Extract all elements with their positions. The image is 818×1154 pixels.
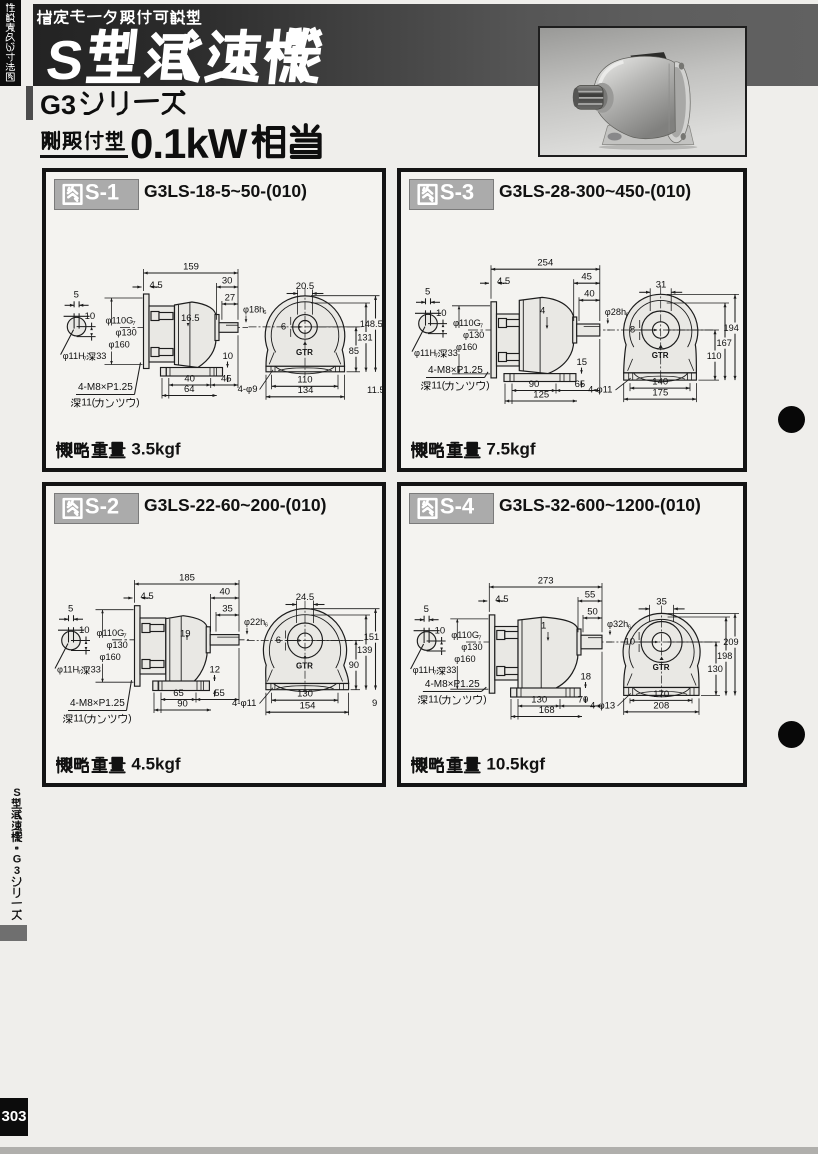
svg-text:33: 33 — [96, 351, 106, 361]
svg-text:11(: 11( — [73, 713, 87, 724]
svg-text:167: 167 — [717, 338, 732, 348]
svg-text:φ160: φ160 — [109, 340, 130, 350]
svg-text:110: 110 — [707, 351, 722, 361]
svg-text:254: 254 — [537, 258, 553, 269]
svg-text:24.5: 24.5 — [296, 592, 315, 603]
svg-text:140: 140 — [652, 377, 668, 388]
svg-text:130: 130 — [297, 689, 313, 700]
svg-text:27: 27 — [225, 292, 236, 303]
svg-text:10: 10 — [85, 311, 96, 322]
svg-text:S: S — [13, 787, 20, 799]
svg-text:185: 185 — [179, 572, 195, 583]
svg-text:5: 5 — [68, 604, 73, 615]
svg-text:GTR: GTR — [296, 662, 313, 671]
svg-text:1: 1 — [541, 620, 546, 631]
svg-text:40: 40 — [584, 289, 595, 300]
svg-text:4.5kgf: 4.5kgf — [127, 756, 181, 773]
svg-text:90: 90 — [177, 698, 188, 709]
svg-text:64: 64 — [184, 384, 195, 395]
svg-text:7: 7 — [83, 356, 86, 362]
svg-text:4: 4 — [540, 305, 545, 316]
svg-text:8: 8 — [630, 324, 635, 335]
svg-text:φ160: φ160 — [456, 342, 477, 352]
svg-text:18: 18 — [581, 671, 592, 682]
svg-text:6: 6 — [265, 623, 268, 629]
svg-text:4-φ11: 4-φ11 — [588, 384, 612, 395]
svg-text:φ11H: φ11H — [63, 351, 85, 361]
svg-text:65: 65 — [173, 688, 184, 699]
svg-text:φ130: φ130 — [116, 328, 137, 338]
svg-text:4-M8×P1.25: 4-M8×P1.25 — [78, 382, 133, 393]
svg-text:S-4: S-4 — [440, 494, 475, 519]
svg-text:GTR: GTR — [296, 348, 313, 357]
svg-text:φ11H: φ11H — [414, 348, 436, 358]
svg-text:10: 10 — [223, 351, 234, 362]
svg-text:4.5: 4.5 — [141, 591, 154, 602]
svg-text:198: 198 — [717, 651, 732, 661]
svg-text:10: 10 — [625, 636, 636, 647]
svg-text:130: 130 — [531, 694, 547, 705]
svg-text:148.5: 148.5 — [360, 319, 382, 329]
svg-text:85: 85 — [349, 346, 359, 356]
svg-text:φ130: φ130 — [463, 330, 484, 340]
svg-text:GTR: GTR — [653, 663, 670, 672]
svg-text:φ160: φ160 — [454, 654, 475, 664]
svg-text:11(: 11( — [428, 694, 442, 705]
svg-text:168: 168 — [539, 705, 555, 716]
svg-text:70: 70 — [578, 694, 589, 705]
svg-text:S-2: S-2 — [85, 494, 119, 519]
svg-text:11.5: 11.5 — [367, 385, 382, 396]
svg-text:φ32h: φ32h — [607, 619, 628, 629]
svg-text:3.5kgf: 3.5kgf — [127, 441, 181, 458]
svg-text:151: 151 — [364, 632, 379, 642]
svg-text:16.5: 16.5 — [181, 313, 200, 324]
svg-text:65: 65 — [575, 379, 586, 390]
svg-text:40: 40 — [220, 586, 231, 597]
svg-text:φ11H: φ11H — [57, 665, 79, 675]
svg-text:50: 50 — [587, 606, 598, 617]
svg-text:φ110G: φ110G — [97, 628, 125, 638]
svg-text:): ) — [136, 397, 139, 408]
svg-text:7: 7 — [478, 636, 481, 642]
svg-text:φ110G: φ110G — [451, 630, 479, 640]
svg-text:G3: G3 — [40, 90, 76, 120]
svg-text:S-3: S-3 — [440, 180, 474, 205]
svg-text:4-M8×P1.25: 4-M8×P1.25 — [70, 698, 125, 709]
svg-text:): ) — [486, 380, 489, 391]
svg-text:5: 5 — [425, 287, 430, 298]
svg-text:6: 6 — [263, 310, 266, 316]
svg-text:5: 5 — [74, 290, 79, 301]
svg-text:90: 90 — [529, 379, 540, 390]
svg-text:φ110G: φ110G — [453, 318, 481, 328]
svg-text:55: 55 — [585, 589, 596, 600]
svg-text:10.5kgf: 10.5kgf — [482, 756, 546, 773]
svg-text:φ110G: φ110G — [106, 316, 134, 326]
svg-text:194: 194 — [724, 323, 739, 333]
svg-text:33: 33 — [91, 665, 101, 675]
svg-text:11(: 11( — [81, 397, 95, 408]
svg-text:5: 5 — [424, 604, 429, 615]
svg-text:12: 12 — [210, 664, 221, 675]
svg-text:7: 7 — [123, 634, 126, 640]
svg-text:139: 139 — [357, 645, 372, 655]
svg-text:154: 154 — [300, 701, 316, 712]
svg-text:φ28h: φ28h — [605, 307, 626, 317]
svg-text:33: 33 — [446, 665, 456, 675]
svg-text:9: 9 — [372, 698, 377, 709]
svg-text:10: 10 — [436, 308, 447, 319]
svg-text:90: 90 — [349, 660, 359, 670]
svg-text:): ) — [128, 713, 131, 724]
svg-text:208: 208 — [653, 700, 669, 711]
svg-text:): ) — [483, 694, 486, 705]
svg-text:7: 7 — [78, 670, 81, 676]
svg-text:40: 40 — [184, 373, 195, 384]
svg-text:20.5: 20.5 — [296, 281, 315, 292]
svg-text:6: 6 — [281, 321, 286, 332]
svg-text:G3LS-32-600~1200-(010): G3LS-32-600~1200-(010) — [499, 497, 701, 515]
svg-text:7: 7 — [433, 671, 436, 677]
svg-text:15: 15 — [577, 357, 588, 368]
svg-text:7.5kgf: 7.5kgf — [482, 441, 536, 458]
svg-text:3: 3 — [14, 865, 20, 877]
svg-text:4.5: 4.5 — [495, 594, 508, 605]
svg-text:175: 175 — [652, 388, 668, 399]
svg-text:10: 10 — [435, 625, 446, 636]
svg-text:45: 45 — [581, 272, 592, 283]
svg-text:S-1: S-1 — [85, 180, 119, 205]
svg-text:φ18h: φ18h — [243, 305, 264, 315]
svg-text:4.5: 4.5 — [150, 280, 163, 291]
svg-text:7: 7 — [435, 353, 438, 359]
svg-text:11(: 11( — [431, 380, 445, 391]
svg-text:209: 209 — [723, 637, 738, 647]
svg-text:4-φ11: 4-φ11 — [232, 698, 256, 709]
svg-text:φ130: φ130 — [107, 640, 128, 650]
svg-text:19: 19 — [180, 628, 191, 639]
svg-text:4-M8×P1.25: 4-M8×P1.25 — [425, 679, 480, 690]
svg-text:φ22h: φ22h — [244, 617, 265, 627]
svg-text:45: 45 — [221, 373, 232, 384]
svg-text:φ130: φ130 — [461, 642, 482, 652]
svg-text:7: 7 — [480, 324, 483, 330]
svg-text:55: 55 — [214, 688, 225, 699]
svg-text:130: 130 — [708, 664, 723, 674]
svg-text:4-φ9: 4-φ9 — [238, 384, 258, 395]
svg-text:G3LS-22-60~200-(010): G3LS-22-60~200-(010) — [144, 497, 326, 515]
svg-text:125: 125 — [533, 389, 549, 400]
svg-text:110: 110 — [297, 375, 312, 386]
svg-text:4-φ13: 4-φ13 — [590, 700, 615, 711]
svg-text:4.5: 4.5 — [497, 276, 510, 287]
svg-text:35: 35 — [222, 603, 233, 614]
svg-text:170: 170 — [653, 689, 669, 700]
svg-text:0.1kW: 0.1kW — [130, 120, 248, 167]
svg-text:30: 30 — [222, 275, 233, 286]
svg-text:G3LS-18-5~50-(010): G3LS-18-5~50-(010) — [144, 183, 307, 201]
svg-text:273: 273 — [538, 575, 554, 586]
svg-text:131: 131 — [357, 333, 372, 343]
svg-text:G3LS-28-300~450-(010): G3LS-28-300~450-(010) — [499, 183, 691, 201]
svg-text:7: 7 — [132, 321, 135, 327]
svg-text:10: 10 — [79, 625, 90, 636]
svg-text:159: 159 — [183, 261, 199, 272]
svg-text:6: 6 — [276, 635, 281, 646]
svg-text:GTR: GTR — [652, 351, 669, 360]
svg-text:φ160: φ160 — [100, 652, 121, 662]
svg-text:31: 31 — [656, 280, 667, 291]
svg-text:134: 134 — [298, 385, 314, 396]
svg-text:35: 35 — [656, 596, 667, 607]
svg-text:φ11H: φ11H — [413, 665, 435, 675]
